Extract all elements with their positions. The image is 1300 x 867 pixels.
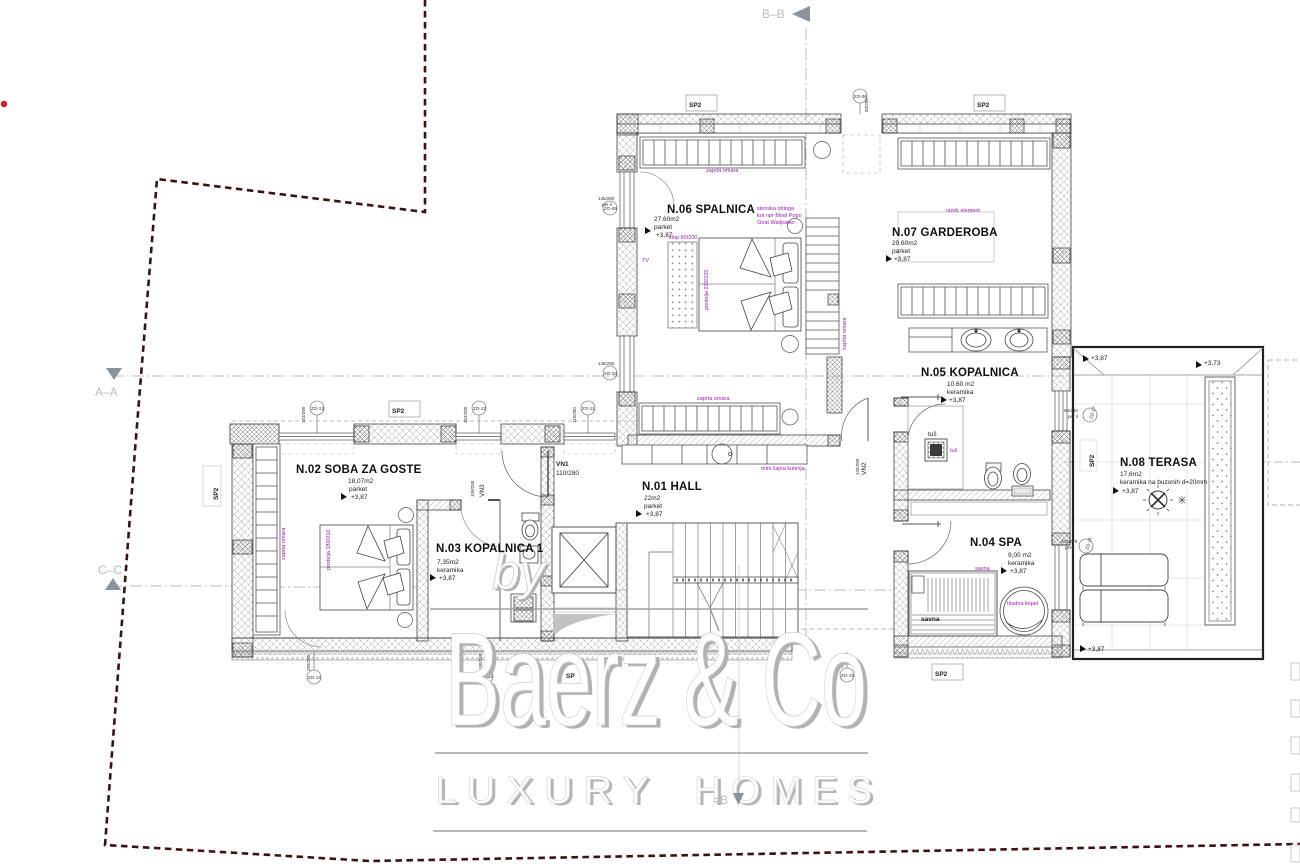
svg-text:+3,87: +3,87 xyxy=(351,494,368,501)
svg-text:N.02 SOBA ZA GOSTE: N.02 SOBA ZA GOSTE xyxy=(296,464,422,476)
svg-text:ZO-13: ZO-13 xyxy=(311,406,324,411)
svg-text:mini čajna kuhinja: mini čajna kuhinja xyxy=(761,466,806,472)
svg-text:+3,87: +3,87 xyxy=(1091,355,1108,362)
svg-text:savna: savna xyxy=(975,566,991,572)
svg-text:N.08 TERASA: N.08 TERASA xyxy=(1120,457,1197,469)
svg-text:83/280: 83/280 xyxy=(864,98,869,112)
svg-text:tuš: tuš xyxy=(950,448,958,454)
svg-text:17,6m2: 17,6m2 xyxy=(1120,471,1142,478)
svg-text:parket: parket xyxy=(349,486,367,493)
svg-text:10.60 m2: 10.60 m2 xyxy=(947,381,974,388)
svg-text:+3,73: +3,73 xyxy=(1204,360,1221,367)
svg-text:=B: =B xyxy=(713,793,728,807)
svg-text:145/290: 145/290 xyxy=(598,361,615,366)
svg-text:zaprta omara: zaprta omara xyxy=(281,527,287,560)
svg-text:ZO-12: ZO-12 xyxy=(473,406,486,411)
svg-text:B–B: B–B xyxy=(762,7,785,21)
svg-text:+3,87: +3,87 xyxy=(439,575,456,582)
svg-text:per il: per il xyxy=(602,202,612,207)
svg-text:20.60m2: 20.60m2 xyxy=(892,240,918,247)
svg-text:stenska obloga: stenska obloga xyxy=(757,206,795,212)
svg-text:100/280: 100/280 xyxy=(470,480,475,497)
svg-text:per0: per0 xyxy=(1065,545,1075,550)
svg-text:VN2: VN2 xyxy=(861,462,868,475)
svg-text:TV: TV xyxy=(642,258,649,264)
svg-text:202/279: 202/279 xyxy=(1061,539,1078,544)
svg-text:SP2: SP2 xyxy=(1089,454,1096,467)
svg-text:+3,87: +3,87 xyxy=(646,511,663,518)
svg-text:keramika: keramika xyxy=(1008,560,1035,567)
svg-text:153/280: 153/280 xyxy=(301,406,306,423)
svg-text:+3,87: +3,87 xyxy=(949,397,966,404)
svg-text:7,35m2: 7,35m2 xyxy=(437,559,459,566)
svg-text:postelja 180/210: postelja 180/210 xyxy=(326,530,332,570)
svg-text:SP2: SP2 xyxy=(213,487,220,500)
svg-text:postelja 210/225: postelja 210/225 xyxy=(704,270,710,310)
svg-text:keramika na buzonih d=20mm: keramika na buzonih d=20mm xyxy=(1120,479,1207,486)
svg-text:+3,87: +3,87 xyxy=(1010,568,1027,575)
svg-text:by: by xyxy=(492,544,548,600)
svg-text:zaprta omara: zaprta omara xyxy=(842,317,848,350)
svg-text:keramika: keramika xyxy=(437,567,464,574)
svg-text:125/280: 125/280 xyxy=(855,458,860,475)
svg-text:hladna kopel: hladna kopel xyxy=(1007,601,1038,607)
svg-text:SP2: SP2 xyxy=(977,102,990,109)
svg-text:parket: parket xyxy=(654,224,672,231)
svg-text:per il: per il xyxy=(1068,414,1078,419)
svg-text:parket: parket xyxy=(644,503,662,510)
svg-text:115/280: 115/280 xyxy=(572,407,577,423)
svg-text:+3,87: +3,87 xyxy=(894,256,911,263)
svg-text:VN1: VN1 xyxy=(556,461,569,468)
svg-text:N.05 KOPALNICA: N.05 KOPALNICA xyxy=(921,367,1019,379)
svg-text:SP2: SP2 xyxy=(392,408,405,415)
svg-text:parket: parket xyxy=(892,248,910,255)
svg-text:18,07m2: 18,07m2 xyxy=(348,478,374,485)
svg-text:145/280: 145/280 xyxy=(598,196,615,201)
svg-text:ZO-10: ZO-10 xyxy=(604,371,617,376)
svg-text:+3,87: +3,87 xyxy=(1122,488,1139,495)
svg-text:keramika: keramika xyxy=(947,389,974,396)
svg-text:Goat Wallpaper: Goat Wallpaper xyxy=(757,220,795,226)
svg-text:9,00 m2: 9,00 m2 xyxy=(1008,552,1032,559)
svg-text:zaprta omara: zaprta omara xyxy=(697,396,730,402)
svg-text:N.04 SPA: N.04 SPA xyxy=(970,537,1022,549)
svg-text:C–C: C–C xyxy=(98,563,122,577)
svg-text:N.07 GARDEROBA: N.07 GARDEROBA xyxy=(892,227,998,239)
svg-text:27.60m2: 27.60m2 xyxy=(654,216,680,223)
svg-text:ZO-14: ZO-14 xyxy=(308,675,321,680)
svg-text:SP2: SP2 xyxy=(935,671,948,678)
svg-text:tuš: tuš xyxy=(928,431,937,438)
svg-text:ZO-11: ZO-11 xyxy=(582,406,595,411)
svg-text:259/280: 259/280 xyxy=(306,654,311,671)
svg-text:SP2: SP2 xyxy=(689,102,702,109)
svg-text:A–A: A–A xyxy=(95,385,118,399)
svg-text:N.06 SPALNICA: N.06 SPALNICA xyxy=(667,204,755,216)
svg-text:klop 60/200: klop 60/200 xyxy=(669,235,697,241)
svg-text:85/290: 85/290 xyxy=(1064,408,1078,413)
svg-text:kot npr Mool Pogo: kot npr Mool Pogo xyxy=(757,213,802,219)
svg-text:L U X U R Y: L U X U R Y xyxy=(435,770,649,812)
svg-text:savna: savna xyxy=(921,616,940,623)
svg-text:zaprta omara: zaprta omara xyxy=(706,168,739,174)
svg-text:153/280: 153/280 xyxy=(463,406,468,423)
svg-text:VN3: VN3 xyxy=(479,484,486,497)
svg-text:Baerz & Co: Baerz & Co xyxy=(445,606,867,754)
svg-text:+3,87: +3,87 xyxy=(1088,646,1105,653)
svg-text:nizek element: nizek element xyxy=(946,208,980,214)
svg-text:22m2: 22m2 xyxy=(644,495,661,502)
svg-text:N.01 HALL: N.01 HALL xyxy=(642,481,702,493)
svg-text:110/280: 110/280 xyxy=(556,470,579,477)
